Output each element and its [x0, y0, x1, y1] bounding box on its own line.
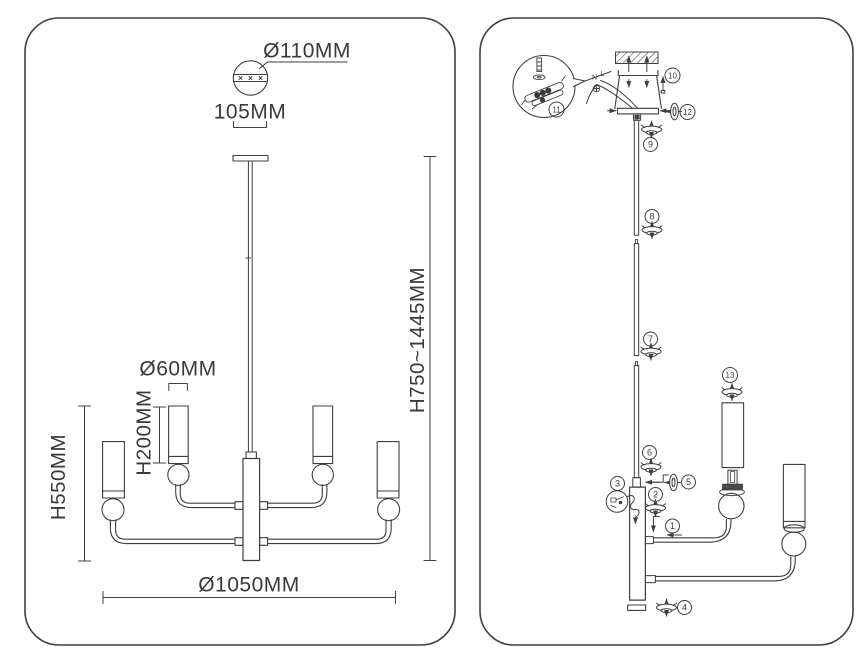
coupler-part-8	[642, 222, 662, 239]
hub-stub-lower	[645, 576, 655, 583]
instruction-sheet: Ø110MM 105MM	[0, 0, 860, 668]
coupler-part-9	[642, 121, 662, 138]
dim-shade-diameter: Ø60MM	[139, 358, 216, 381]
shade-assembled	[783, 464, 805, 532]
supply-wires	[587, 81, 638, 109]
arm-lower-right	[268, 520, 392, 544]
svg-text:13: 13	[726, 371, 735, 380]
stem-lock-nut	[634, 114, 641, 120]
ceiling-plate	[233, 156, 268, 162]
rod-segment-2	[634, 244, 638, 356]
arm-upper-left	[176, 485, 235, 508]
part-circle-1: 1	[666, 519, 680, 533]
rod-segment-3	[634, 366, 638, 478]
ground-symbol	[593, 85, 599, 91]
part-circle-9: 9	[644, 138, 658, 152]
part-10-bolt	[661, 77, 665, 93]
mounting-bracket-bar	[618, 71, 658, 76]
ball-joint-arm-2	[782, 532, 806, 556]
center-hub	[243, 459, 260, 561]
part-circle-2: 2	[649, 488, 663, 502]
shade-upper-right	[313, 406, 333, 464]
shade-upper-left	[169, 406, 189, 464]
exploded-center-hub	[630, 487, 646, 600]
dim-total-width: Ø1050MM	[198, 574, 300, 597]
rod-2-nipple	[635, 240, 637, 244]
coupler-part-4	[657, 599, 677, 616]
ball-joint-upper-right	[312, 464, 333, 485]
bracket-ø60	[169, 384, 188, 391]
lamp-socket	[720, 470, 745, 495]
part-circle-10: 10	[665, 68, 680, 83]
arm-2	[655, 557, 795, 581]
hub-arm-stubs	[235, 502, 268, 546]
mounting-bracket-legs	[615, 76, 662, 109]
part-circle-13: 13	[723, 368, 738, 383]
svg-text:4: 4	[682, 603, 687, 613]
anchor-screw-vertical	[533, 58, 545, 80]
ball-joint-lower-right	[378, 499, 400, 521]
screw-hole-marks	[239, 77, 262, 80]
shade-lower-left	[103, 442, 125, 498]
ball-joint-lower-left	[102, 499, 124, 521]
arm-upper-right	[268, 485, 327, 508]
dim-shade-height: H200MM	[133, 389, 156, 475]
part-5-leader	[648, 475, 669, 482]
mounting-screw-arrows-down	[629, 80, 647, 88]
ball-joint-arm-1	[719, 493, 744, 518]
rod-3-nipple	[635, 362, 637, 366]
arm-lower-left	[110, 520, 235, 544]
part-circle-7: 7	[644, 332, 658, 346]
pendant-stem	[248, 161, 252, 452]
canopy-side-view	[618, 108, 659, 114]
dim-canopy-offset: 105MM	[214, 101, 287, 124]
connector-part-5	[665, 474, 681, 491]
dim-body-height: H550MM	[47, 434, 70, 520]
part-1-leader	[653, 517, 659, 529]
svg-text:5: 5	[686, 477, 691, 487]
leader-line-ø110	[260, 62, 348, 69]
part-circle-6: 6	[643, 446, 657, 460]
ceiling-hatch	[616, 52, 659, 64]
svg-text:12: 12	[683, 108, 692, 117]
ball-joint-upper-left	[168, 464, 189, 485]
svg-text:10: 10	[668, 72, 677, 81]
part-circle-4: 4	[678, 601, 692, 615]
hub-collar	[246, 452, 256, 459]
svg-text:8: 8	[649, 212, 654, 222]
right-panel-border	[480, 18, 853, 645]
rod-segment-1	[634, 120, 638, 235]
right-panel: N L	[480, 18, 853, 645]
dim-line-body-height	[79, 406, 91, 561]
part-circle-5: 5	[682, 475, 696, 489]
dim-total-height: H750~1445MM	[406, 267, 429, 413]
svg-text:6: 6	[647, 448, 652, 458]
coupler-part-13	[722, 384, 742, 401]
rod-hub-collar	[633, 478, 641, 488]
shade-lower-right	[377, 442, 399, 498]
dim-canopy-diameter: Ø110MM	[263, 40, 351, 63]
part-circle-12: 12	[680, 105, 695, 120]
left-panel: Ø110MM 105MM	[25, 18, 455, 645]
detail-circle-wiring	[606, 491, 628, 513]
svg-text:1: 1	[670, 521, 675, 531]
connector-part-12	[666, 103, 682, 120]
svg-text:7: 7	[648, 334, 653, 344]
arm-1	[653, 520, 731, 543]
part-circle-8: 8	[645, 210, 659, 224]
coupler-part-2	[646, 500, 666, 517]
svg-text:3: 3	[615, 479, 620, 489]
svg-text:11: 11	[552, 106, 561, 115]
svg-text:9: 9	[648, 140, 653, 150]
hub-stub-upper	[645, 537, 653, 544]
diagram-svg: Ø110MM 105MM	[0, 0, 860, 668]
svg-text:2: 2	[653, 490, 658, 500]
shade-cylinder-exploded	[722, 403, 744, 468]
coupler-part-6	[641, 459, 661, 476]
part-circle-3: 3	[611, 477, 625, 491]
hub-bottom-cap	[628, 605, 646, 610]
